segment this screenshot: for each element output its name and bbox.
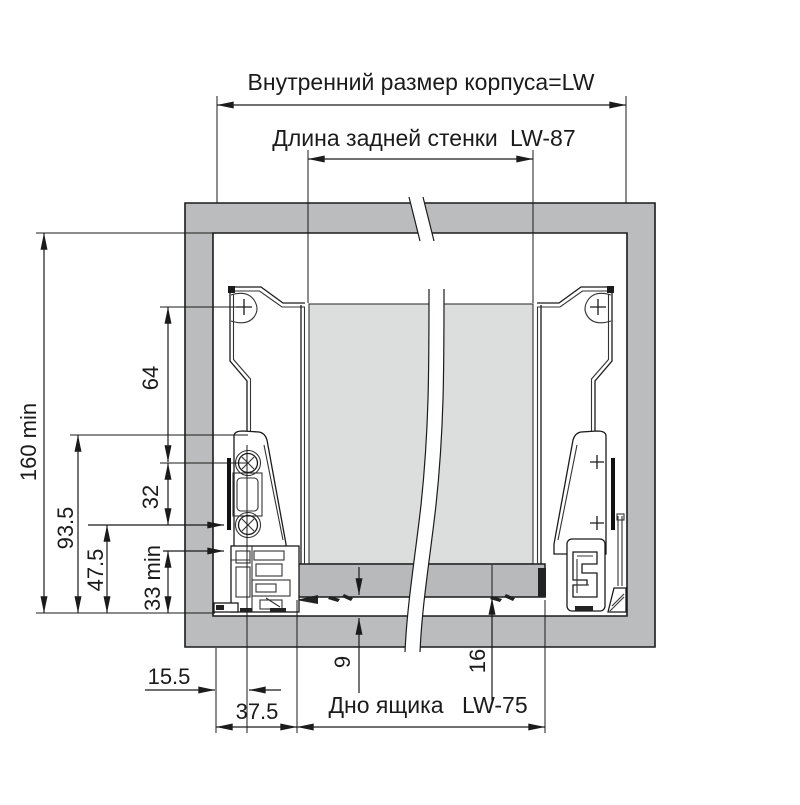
left-runner-assembly [214,286,305,612]
label-drawer-bottom: Дно ящика [328,692,443,718]
dim-label-15-5: 15.5 [148,664,191,689]
rail-gap-shading [611,458,615,530]
dim-label-33min: 33 min [140,545,165,611]
bracket-corner [228,286,235,293]
dim-label-93-5: 93.5 [53,507,78,550]
right-runner-assembly [537,286,626,612]
bracket-corner [607,286,614,293]
label-drawer-bottom-value: LW-75 [462,692,528,718]
dim-label-37-5: 37.5 [236,699,279,724]
dim-label-16: 16 [465,649,490,673]
technical-diagram: Внутренний размер корпуса=LW Длина задне… [0,0,800,800]
screw-cross-mark [590,299,606,315]
dim-label-9: 9 [330,656,355,668]
dim-label-32: 32 [138,485,163,509]
label-back-wall-length: Длина задней стенки [272,125,497,151]
rail-gap-shading [227,458,231,530]
drawer-mounting-diagram: Внутренний размер корпуса=LW Длина задне… [0,0,800,800]
front-locking-device [214,546,299,612]
dim-label-47-5: 47.5 [83,549,108,592]
dim-label-64: 64 [138,366,163,390]
label-back-wall-value: LW-87 [510,125,576,151]
side-bracket-wedge [554,431,606,554]
dim-label-160min: 160 min [16,403,41,481]
label-cabinet-inner-width: Внутренний размер корпуса=LW [248,69,595,95]
